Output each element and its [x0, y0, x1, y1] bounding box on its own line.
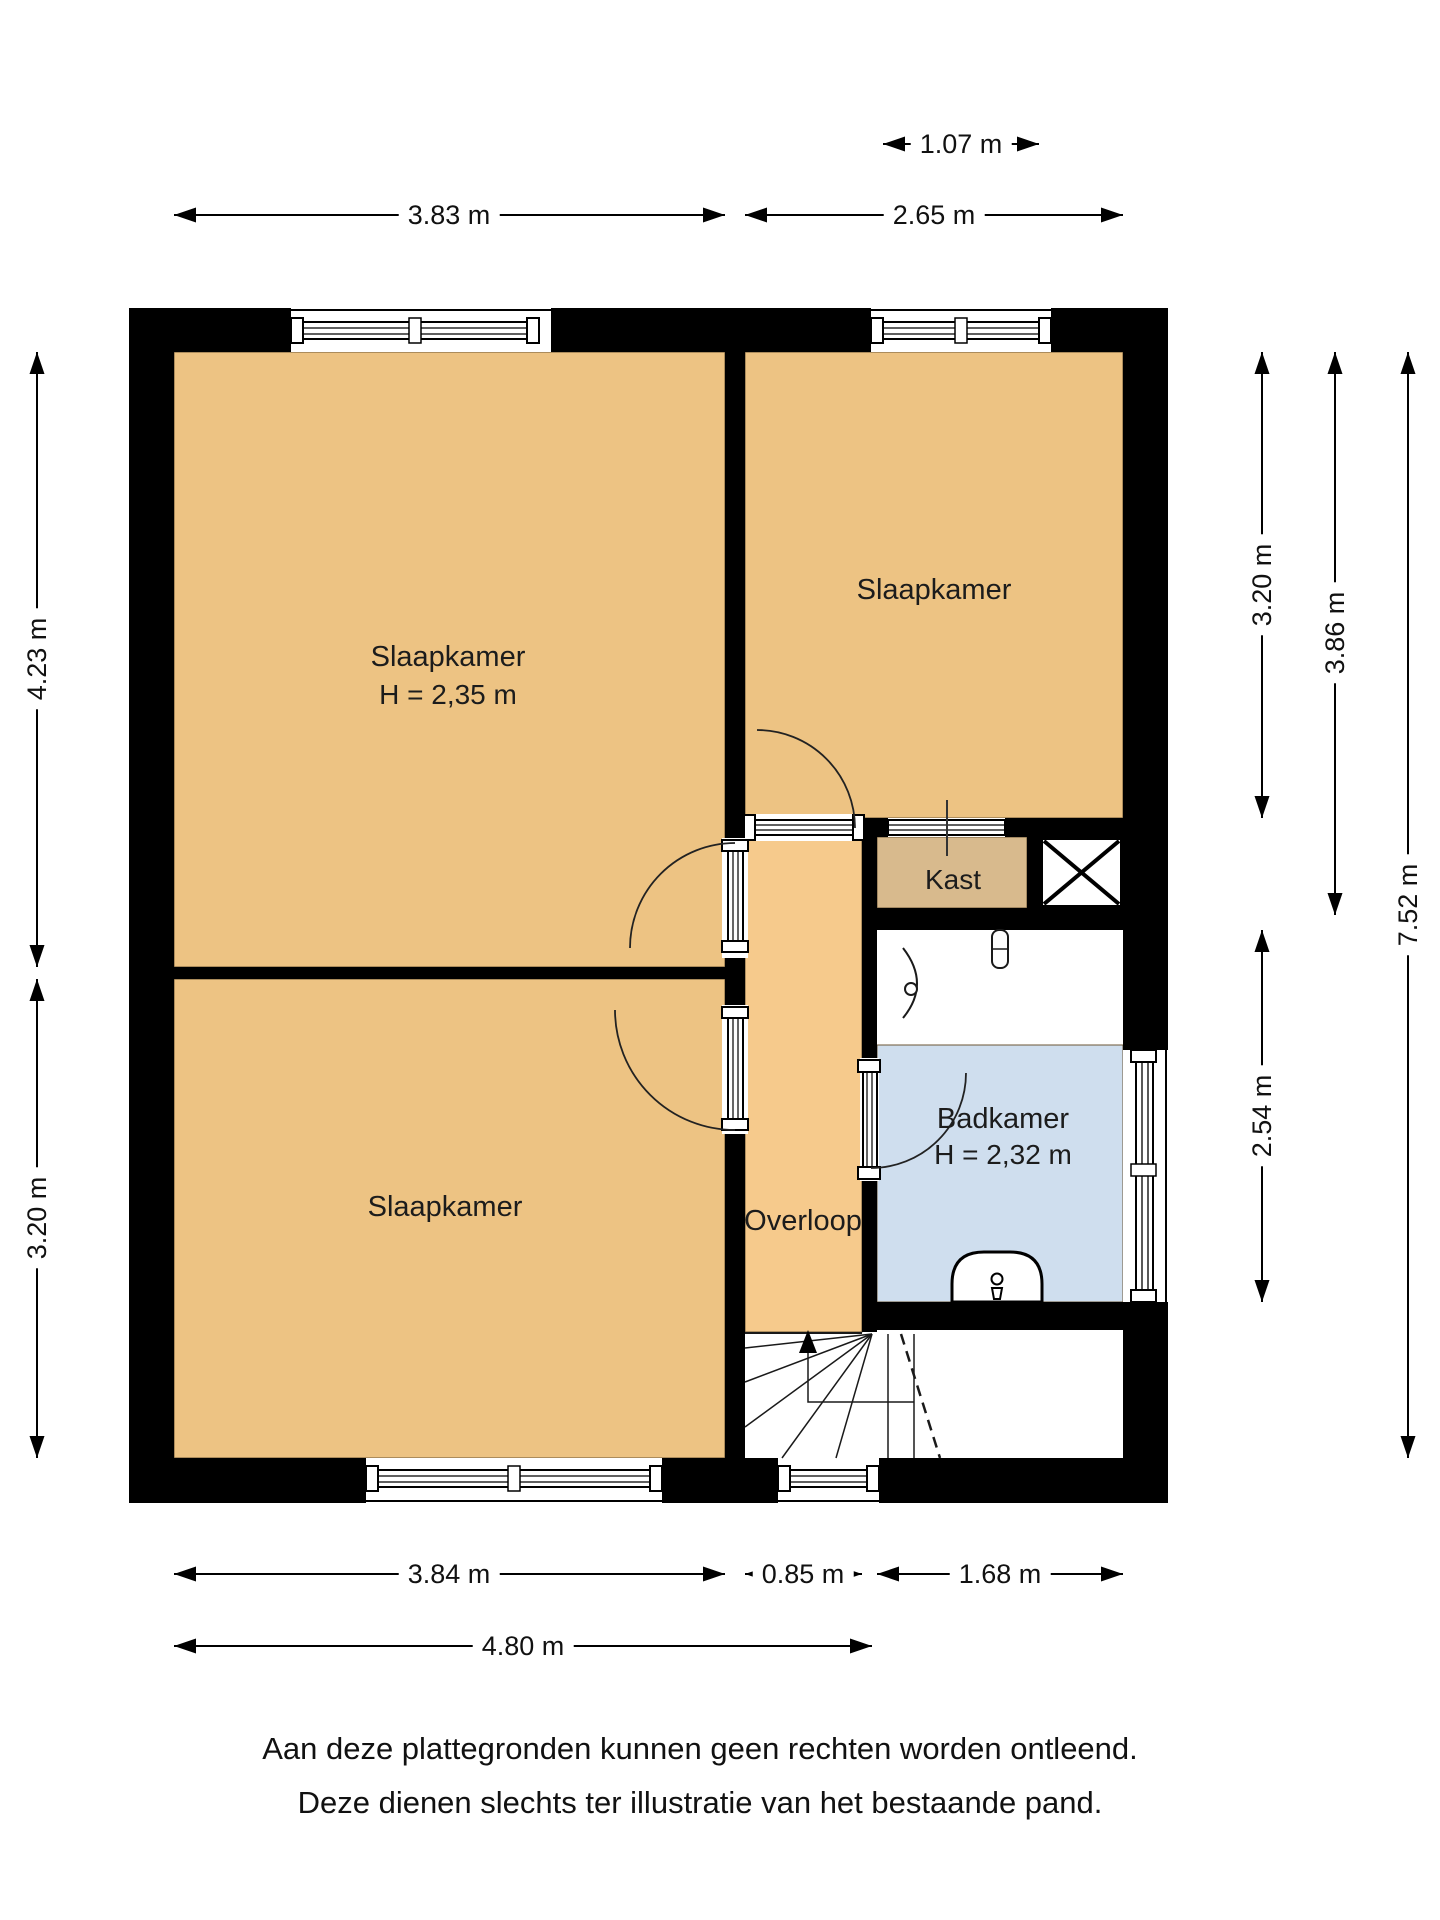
dim-label-4-80: 4.80 m [473, 1629, 574, 1663]
dim-label-7-52: 7.52 m [1391, 855, 1425, 956]
disclaimer-line-2: Deze dienen slechts ter illustratie van … [0, 1776, 1400, 1830]
label-badkamer: Badkamer H = 2,32 m [934, 1101, 1072, 1173]
dim-label-0-85: 0.85 m [753, 1557, 854, 1591]
floorplan-drawing [0, 0, 1440, 1920]
dim-label-3-86: 3.86 m [1318, 583, 1352, 684]
label-bedroom-top-right: Slaapkamer [857, 572, 1012, 609]
room-name: Overloop [744, 1203, 862, 1240]
window-badkamer-icon [1123, 1050, 1168, 1302]
dim-label-4-23: 4.23 m [20, 609, 54, 710]
room-name: Badkamer [934, 1101, 1072, 1137]
dim-label-3-20-right: 3.20 m [1245, 535, 1279, 636]
dim-label-2-65: 2.65 m [884, 198, 985, 232]
dim-label-3-83: 3.83 m [399, 198, 500, 232]
room-name: Slaapkamer [368, 1189, 523, 1226]
room-name: Kast [925, 861, 981, 898]
shaft-x-icon [1040, 837, 1123, 908]
stairs-cut-line [901, 1334, 940, 1458]
window-bottom-stairs-icon [778, 1458, 879, 1503]
room-height: H = 2,35 m [371, 676, 526, 713]
label-bedroom-left-bottom: Slaapkamer [368, 1189, 523, 1226]
dim-label-1-68: 1.68 m [950, 1557, 1051, 1591]
window-top-right-icon [871, 308, 1051, 352]
toilet-icon [952, 1252, 1042, 1302]
room-name: Slaapkamer [371, 639, 526, 676]
window-bottom-left-icon [366, 1458, 662, 1503]
stairs-walk-line [808, 1350, 914, 1402]
staircase [745, 1330, 940, 1458]
dim-label-3-20-left: 3.20 m [20, 1168, 54, 1269]
dim-label-2-54: 2.54 m [1245, 1066, 1279, 1167]
label-bedroom-left-top: Slaapkamer H = 2,35 m [371, 639, 526, 713]
room-height: H = 2,32 m [934, 1137, 1072, 1173]
label-overloop: Overloop [744, 1203, 862, 1240]
disclaimer: Aan deze plattegronden kunnen geen recht… [0, 1722, 1400, 1830]
disclaimer-line-1: Aan deze plattegronden kunnen geen recht… [0, 1722, 1400, 1776]
dim-label-1-07: 1.07 m [911, 127, 1012, 161]
room-name: Slaapkamer [857, 572, 1012, 609]
label-kast: Kast [925, 861, 981, 898]
window-top-left-icon [291, 308, 551, 352]
room-overloop [745, 837, 862, 1332]
dim-label-3-84: 3.84 m [399, 1557, 500, 1591]
floorplan-page: 1.07 m 3.83 m 2.65 m 4.23 m 3.20 m 3.20 … [0, 0, 1440, 1920]
